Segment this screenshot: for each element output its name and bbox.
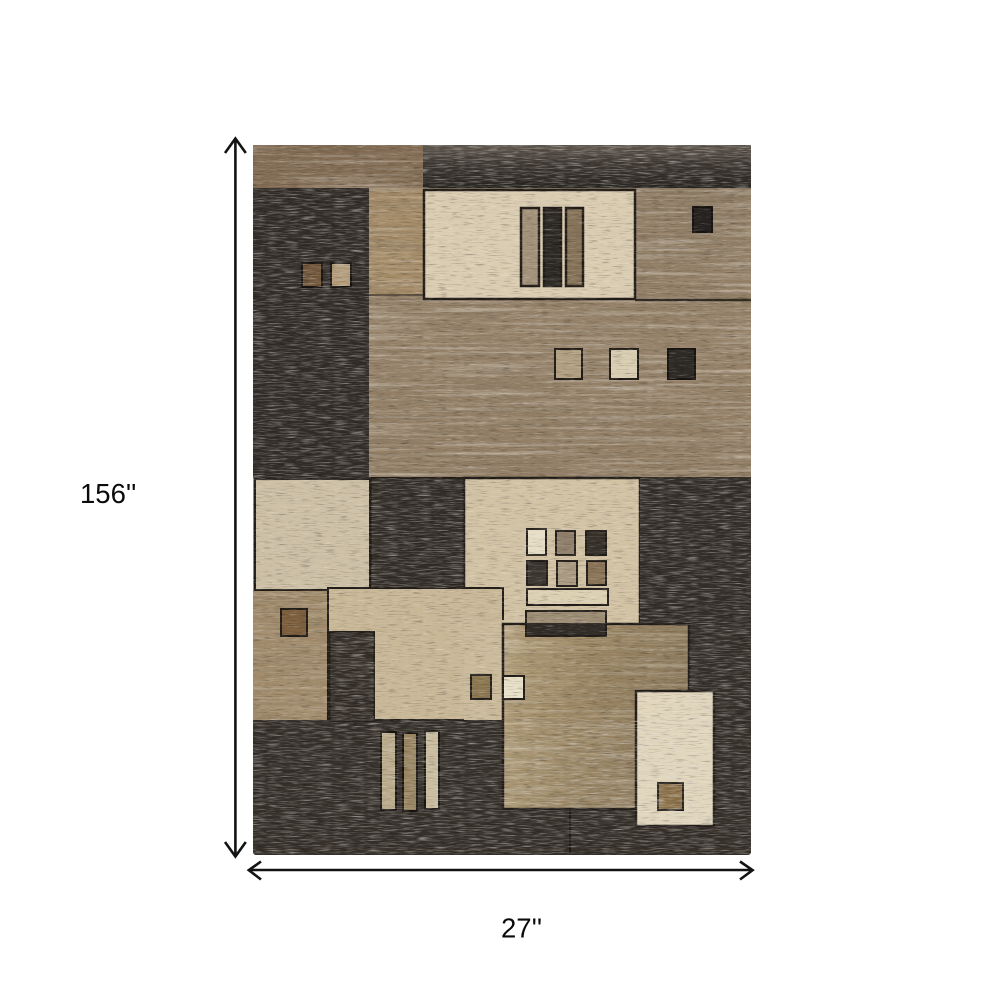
svg-text:27'': 27'': [501, 913, 542, 944]
svg-text:156'': 156'': [80, 478, 136, 509]
